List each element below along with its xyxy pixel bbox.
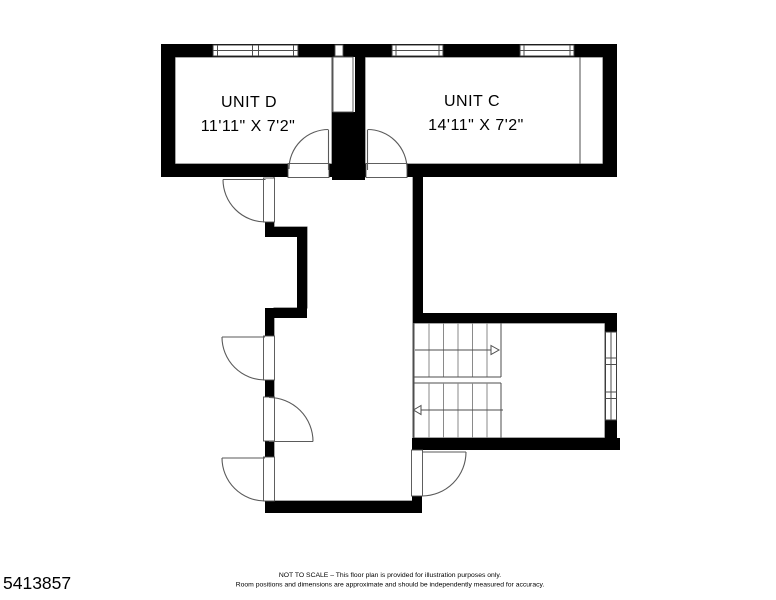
wall-stair-room-bottom	[412, 438, 620, 450]
unit-c-dimensions: 14'11" X 7'2"	[428, 117, 524, 134]
stair-direction-arrow-right	[415, 346, 499, 355]
wall-unit-divider	[355, 44, 365, 114]
door-opening-hall-left-3	[264, 397, 275, 441]
footer: 5413857 NOT TO SCALE – This floor plan i…	[3, 572, 544, 593]
plan-number: 5413857	[3, 573, 71, 593]
wall-jog-vertical	[297, 227, 307, 318]
wall-stair-room-top	[413, 313, 617, 323]
stair-room-interior-outline	[414, 323, 605, 438]
unit-d-dimensions: 11'11" X 7'2"	[201, 118, 296, 135]
door-opening-unit-d	[288, 164, 329, 178]
door-opening-hall-left-4	[264, 457, 275, 501]
wall-stair-room-right-upper	[605, 313, 617, 332]
chimney-niche	[333, 57, 353, 112]
hallway-interior-outline	[274, 177, 413, 501]
wall-hall-right	[413, 173, 423, 323]
disclaimer-line-2: Room positions and dimensions are approx…	[236, 582, 545, 589]
door-swing-arc	[223, 180, 266, 223]
wall-jog-bottom	[265, 308, 307, 318]
door-hall-right	[422, 452, 466, 496]
floor-plan-page: UNIT D 11'11" X 7'2" UNIT C 14'11" X 7'2…	[0, 0, 776, 600]
door-hall-left-1	[223, 180, 266, 223]
unit-d-name: UNIT D	[221, 94, 277, 111]
door-opening-hall-left-2	[264, 336, 275, 380]
wall-stub-below-door	[412, 496, 422, 513]
wall-left-unit-d	[161, 44, 175, 177]
wall-right-unit-c	[603, 44, 617, 177]
door-hall-left-3	[269, 398, 313, 442]
wall-rooms-bottom-left	[161, 164, 289, 177]
window-unit-c-left	[392, 45, 443, 56]
window-unit-c-right	[520, 45, 574, 56]
door-hall-left-4	[222, 458, 265, 501]
door-opening-hall-left-1	[264, 178, 275, 222]
arrow-head-right-icon	[491, 346, 499, 355]
wall-hall-bottom	[265, 501, 422, 513]
wall-hall-left-seg4	[265, 441, 274, 457]
wall-rooms-bottom-right	[407, 164, 617, 177]
door-swing-arc	[269, 398, 313, 442]
unit-c-name: UNIT C	[444, 93, 500, 110]
door-swing-arc	[222, 458, 265, 501]
staircase	[414, 323, 504, 438]
door-openings	[264, 164, 423, 502]
floor-plan-drawing: UNIT D 11'11" X 7'2" UNIT C 14'11" X 7'2…	[0, 0, 776, 600]
door-swing-arc	[422, 452, 466, 496]
chimney-block	[332, 112, 365, 180]
window-unit-d	[213, 45, 298, 56]
arrow-head-left-icon	[414, 406, 422, 415]
window-stair-room-right	[606, 332, 617, 420]
wall-hall-left-seg3	[265, 380, 274, 397]
top-wall-slot	[335, 45, 343, 56]
door-opening-unit-c	[366, 164, 407, 178]
disclaimer-line-1: NOT TO SCALE – This floor plan is provid…	[279, 572, 501, 579]
walls	[161, 44, 620, 513]
door-hall-left-2	[222, 337, 265, 380]
wall-hall-left-seg2	[265, 318, 274, 336]
door-swing-arc	[222, 337, 265, 380]
door-opening-hall-right	[412, 450, 423, 496]
